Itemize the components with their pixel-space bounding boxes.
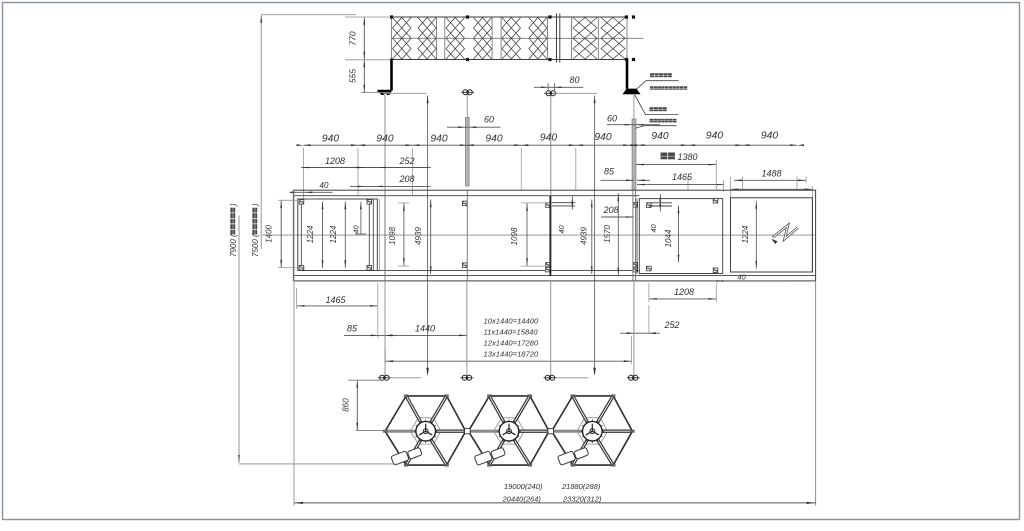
- svg-text:40: 40: [737, 273, 746, 282]
- svg-text:12x1440=17280: 12x1440=17280: [484, 339, 539, 348]
- svg-text:770: 770: [348, 31, 358, 45]
- svg-text:7900 (: 7900 (: [229, 233, 238, 257]
- svg-text:19000(240): 19000(240): [504, 482, 543, 491]
- svg-text:1400: 1400: [265, 225, 274, 243]
- svg-text:1465: 1465: [672, 172, 693, 182]
- svg-text:1044: 1044: [664, 229, 673, 247]
- svg-text:940: 940: [706, 131, 723, 142]
- svg-text:1098: 1098: [510, 227, 519, 245]
- svg-text:940: 940: [322, 134, 339, 145]
- svg-text:40: 40: [557, 225, 566, 234]
- svg-text:940: 940: [485, 134, 502, 145]
- svg-text:1570: 1570: [603, 225, 612, 243]
- svg-text:23320(312): 23320(312): [562, 495, 602, 504]
- svg-text:1380: 1380: [678, 152, 698, 162]
- svg-text:): ): [229, 203, 238, 207]
- svg-text:7500 (: 7500 (: [251, 233, 260, 257]
- svg-text:85: 85: [347, 324, 358, 334]
- svg-text:20440(264): 20440(264): [502, 495, 542, 504]
- svg-text:940: 940: [761, 131, 778, 142]
- svg-text:85: 85: [604, 167, 615, 177]
- svg-text:11x1440=15840: 11x1440=15840: [484, 328, 539, 337]
- svg-text:40: 40: [352, 225, 361, 234]
- svg-text:4939: 4939: [414, 227, 423, 245]
- svg-text:4939: 4939: [580, 227, 589, 245]
- svg-text:940: 940: [430, 134, 447, 145]
- svg-text:40: 40: [649, 224, 658, 233]
- svg-text:1224: 1224: [306, 225, 315, 243]
- svg-text:252: 252: [663, 320, 679, 330]
- svg-text:60: 60: [607, 114, 617, 124]
- svg-text:80: 80: [569, 75, 579, 85]
- svg-text:940: 940: [651, 131, 668, 142]
- svg-text:1098: 1098: [388, 227, 397, 245]
- svg-text:1465: 1465: [325, 295, 346, 305]
- svg-text:10x1440=14400: 10x1440=14400: [484, 317, 539, 326]
- svg-text:): ): [251, 203, 260, 207]
- svg-text:40: 40: [320, 181, 329, 190]
- svg-text:1488: 1488: [761, 169, 781, 179]
- svg-text:1224: 1224: [329, 225, 338, 243]
- svg-text:21880(288): 21880(288): [561, 482, 601, 491]
- svg-text:1440: 1440: [415, 324, 435, 334]
- svg-text:208: 208: [603, 205, 619, 215]
- svg-text:940: 940: [594, 132, 611, 143]
- svg-text:1224: 1224: [741, 225, 750, 243]
- svg-text:940: 940: [376, 134, 393, 145]
- svg-text:940: 940: [540, 133, 557, 144]
- svg-text:555: 555: [348, 69, 358, 83]
- svg-text:860: 860: [342, 398, 351, 412]
- svg-text:13x1440=18720: 13x1440=18720: [484, 350, 539, 359]
- svg-text:1208: 1208: [674, 287, 694, 297]
- svg-text:60: 60: [484, 115, 494, 125]
- svg-text:208: 208: [398, 174, 414, 184]
- svg-text:1208: 1208: [325, 156, 345, 166]
- svg-text:252: 252: [398, 156, 414, 166]
